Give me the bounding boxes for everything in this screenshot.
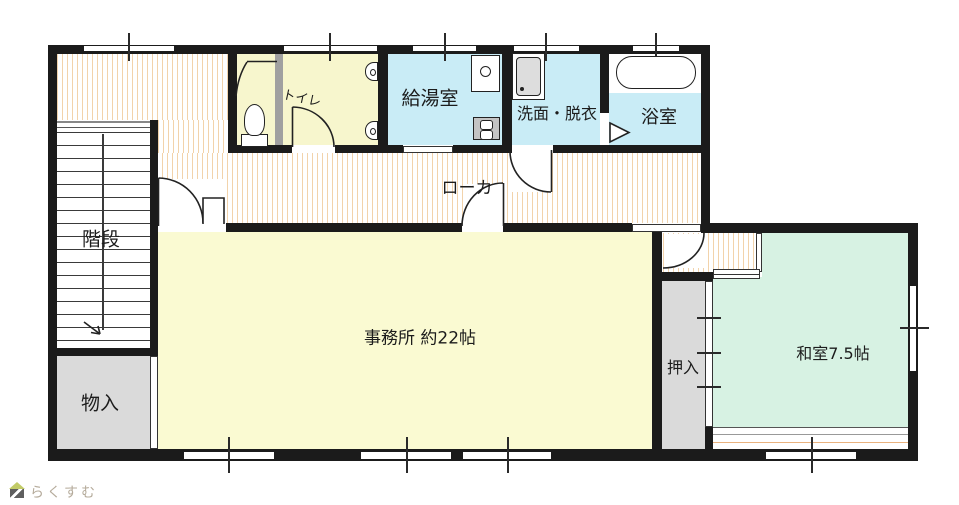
window-washitsu-s-tick [811, 437, 813, 473]
window-office-sw-tick [228, 437, 230, 473]
stove-icon [473, 117, 500, 140]
wall-stairs-bottom [48, 348, 158, 356]
wall-washroom-bath [600, 48, 609, 113]
corridor-label: ローカ [442, 174, 493, 199]
wall-left [48, 45, 57, 461]
bathroom-label: 浴室 [641, 103, 677, 129]
wall-right-upper [701, 45, 710, 233]
washing-machine-icon [516, 57, 541, 96]
wall-kitchen-washroom [502, 45, 512, 153]
japanese-room-label: 和室7.5帖 [796, 340, 869, 364]
vestibule-right-slider [756, 233, 762, 272]
wall-toilet-kitchen [378, 45, 388, 153]
oshiire-fusuma [705, 281, 713, 427]
window-office-s1-tick [406, 437, 408, 473]
wall-wetblock-bottom-2 [335, 145, 403, 153]
fusuma-tick-1 [697, 317, 721, 319]
washroom-label: 洗面・脱衣 [517, 100, 597, 124]
window-kitchenette-tick [444, 33, 446, 61]
wall-washitsu-top [701, 223, 908, 233]
wall-wetblock-bottom-3 [453, 145, 510, 153]
window-office-s2-tick [507, 437, 509, 473]
office-label: 事務所 約22帖 [364, 324, 476, 349]
closet-oshiire-label: 押入 [667, 354, 699, 378]
entrance-hall-floor [57, 53, 228, 120]
wall-stairs-right [150, 120, 158, 356]
logo: らくすむ [9, 481, 129, 501]
bathtub-icon [616, 56, 696, 89]
entrance-hall-floor-lower [158, 120, 228, 153]
hall-door-swing-area [159, 179, 225, 224]
stairs-top-edge [57, 121, 150, 128]
window-washroom-tick [545, 33, 547, 61]
window-washitsu-e-tick [900, 327, 929, 329]
washitsu-entry-slider [713, 269, 760, 279]
wall-office-top-1 [226, 223, 462, 232]
floor-plan-canvas: 階段 トイレ 給湯室 洗面・脱衣 浴室 ローカ 事務所 約22帖 押入 和室7.… [0, 0, 959, 505]
fusuma-tick-2 [697, 352, 721, 354]
corridor-floor [157, 153, 701, 223]
fusuma-tick-3 [697, 386, 721, 388]
kitchenette-label: 給湯室 [401, 84, 458, 111]
window-toilet-tick [329, 33, 331, 61]
stairs-label: 階段 [82, 225, 120, 252]
wall-office-right [652, 232, 662, 449]
window-entrance-tick [128, 33, 130, 61]
washroom-door-swing-area [512, 153, 552, 192]
wall-vestibule-bottom [652, 272, 713, 281]
urinal-icon-2 [365, 121, 378, 140]
wall-office-top-2 [503, 223, 632, 232]
storage-label: 物入 [81, 389, 119, 416]
kitchenette-door-opening [403, 146, 453, 153]
urinal-icon-1 [365, 62, 378, 81]
logo-text: らくすむ [30, 482, 98, 502]
wall-wetblock-bottom-4 [553, 145, 710, 153]
sink-faucet-icon [480, 66, 491, 77]
vestibule-door-swing-area [664, 234, 705, 268]
room-japanese-west [713, 277, 762, 449]
wall-washitsu-post [705, 427, 713, 449]
toilet-bowl-icon [244, 104, 265, 136]
storage-slider [150, 356, 158, 449]
vestibule-top-slider [632, 224, 701, 232]
wall-toilet-left [228, 45, 237, 153]
